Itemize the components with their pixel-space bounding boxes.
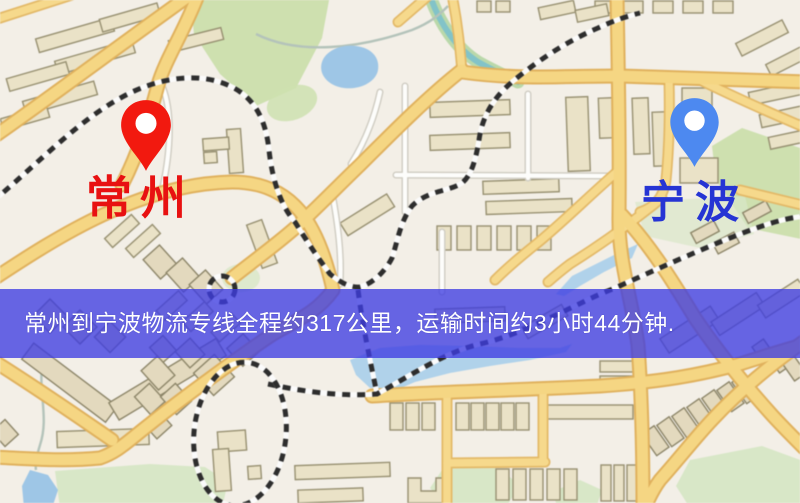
origin-label: 常州 (86, 176, 194, 222)
map-screenshot[interactable]: 常州 宁波 常州到宁波物流专线全程约317公里，运输时间约3小时44分钟. (0, 0, 800, 503)
route-info-text: 常州到宁波物流专线全程约317公里，运输时间约3小时44分钟. (0, 304, 675, 344)
route-info-banner: 常州到宁波物流专线全程约317公里，运输时间约3小时44分钟. (0, 289, 800, 358)
origin-pin-icon[interactable] (119, 99, 173, 172)
destination-pin-icon[interactable] (667, 97, 722, 168)
destination-label: 宁波 (641, 181, 749, 225)
map-canvas[interactable] (0, 0, 800, 503)
lake (321, 46, 378, 89)
